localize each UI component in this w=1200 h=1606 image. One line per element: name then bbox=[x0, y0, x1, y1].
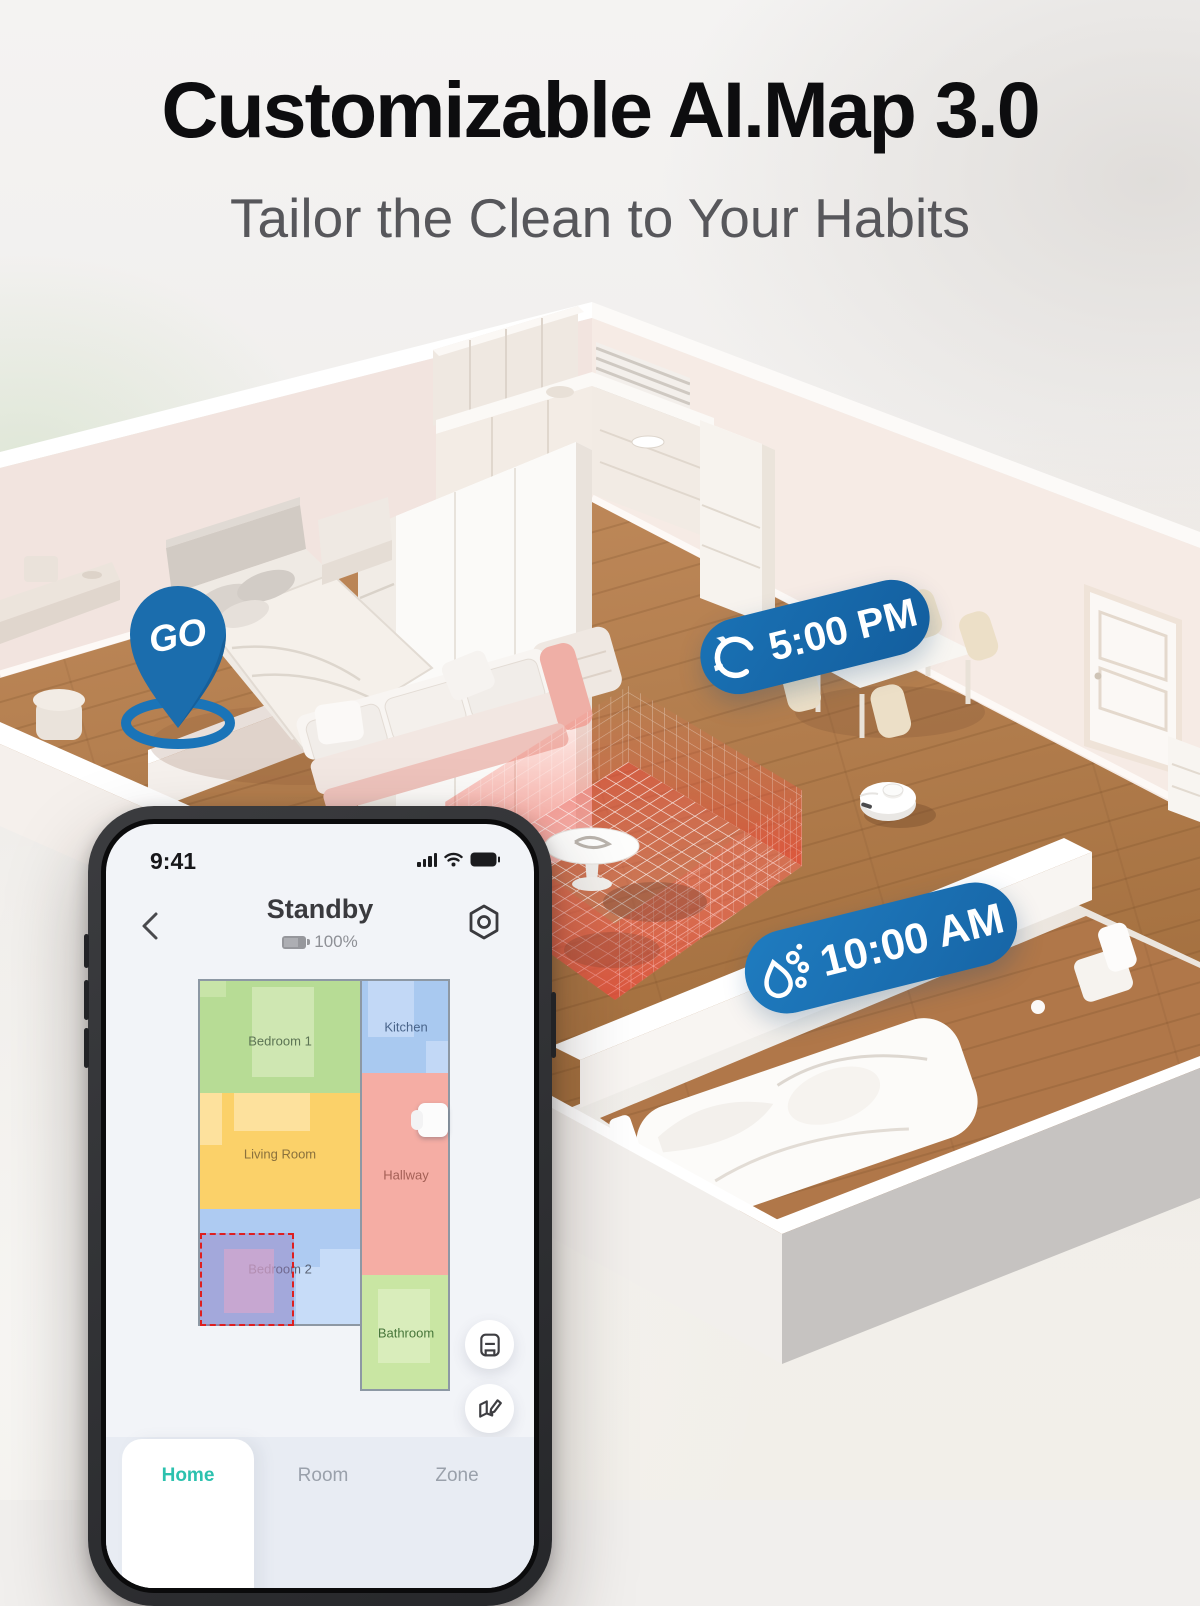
robot-dock-icon bbox=[418, 1103, 448, 1137]
map-left-section: Bedroom 1 Living Room Bedroom 2 bbox=[198, 979, 362, 1326]
robot-battery-percent: 100% bbox=[314, 932, 357, 952]
phone-screen: 9:41 Standby 100% bbox=[101, 819, 539, 1593]
signal-bars-icon bbox=[417, 853, 437, 867]
map-room-living[interactable]: Living Room bbox=[200, 1093, 360, 1209]
status-bar-icons bbox=[417, 852, 500, 867]
phone-mockup: 9:41 Standby 100% bbox=[88, 806, 552, 1606]
map-room-bedroom2[interactable]: Bedroom 2 bbox=[200, 1209, 360, 1324]
map-edit-icon bbox=[477, 1396, 503, 1422]
map-room-kitchen[interactable]: Kitchen bbox=[362, 981, 448, 1073]
vacuum-spin-icon bbox=[708, 629, 764, 685]
map-management-button[interactable] bbox=[465, 1320, 514, 1369]
robot-battery-icon bbox=[282, 936, 306, 949]
tab-home[interactable]: Home bbox=[162, 1465, 215, 1487]
tab-zone[interactable]: Zone bbox=[435, 1465, 478, 1487]
phone-action-button bbox=[84, 934, 89, 968]
map-room-hallway[interactable]: Hallway bbox=[362, 1073, 448, 1275]
phone-volume-down-button bbox=[84, 1028, 89, 1068]
mop-water-drop-icon bbox=[753, 941, 816, 1004]
map-right-section: Kitchen Hallway Bathroom bbox=[360, 979, 450, 1391]
edit-map-button[interactable] bbox=[465, 1384, 514, 1433]
home-map: Bedroom 1 Living Room Bedroom 2 bbox=[198, 979, 450, 1391]
tab-room[interactable]: Room bbox=[298, 1465, 349, 1487]
map-manage-icon bbox=[477, 1332, 503, 1358]
map-room-bedroom1[interactable]: Bedroom 1 bbox=[200, 981, 360, 1093]
status-bar-time: 9:41 bbox=[150, 848, 196, 875]
wifi-icon bbox=[444, 852, 463, 867]
go-pin: GO bbox=[108, 578, 253, 753]
zone-selection-bedroom2[interactable] bbox=[200, 1233, 294, 1326]
map-room-bathroom[interactable]: Bathroom bbox=[362, 1275, 448, 1389]
settings-button[interactable] bbox=[464, 902, 504, 942]
map-tab-bar: Home Room Zone bbox=[106, 1437, 534, 1593]
active-tab-card bbox=[122, 1439, 254, 1593]
phone-volume-up-button bbox=[84, 980, 89, 1020]
battery-icon bbox=[470, 852, 500, 867]
phone-power-button bbox=[551, 992, 556, 1058]
app-header: Standby 100% bbox=[106, 886, 534, 976]
